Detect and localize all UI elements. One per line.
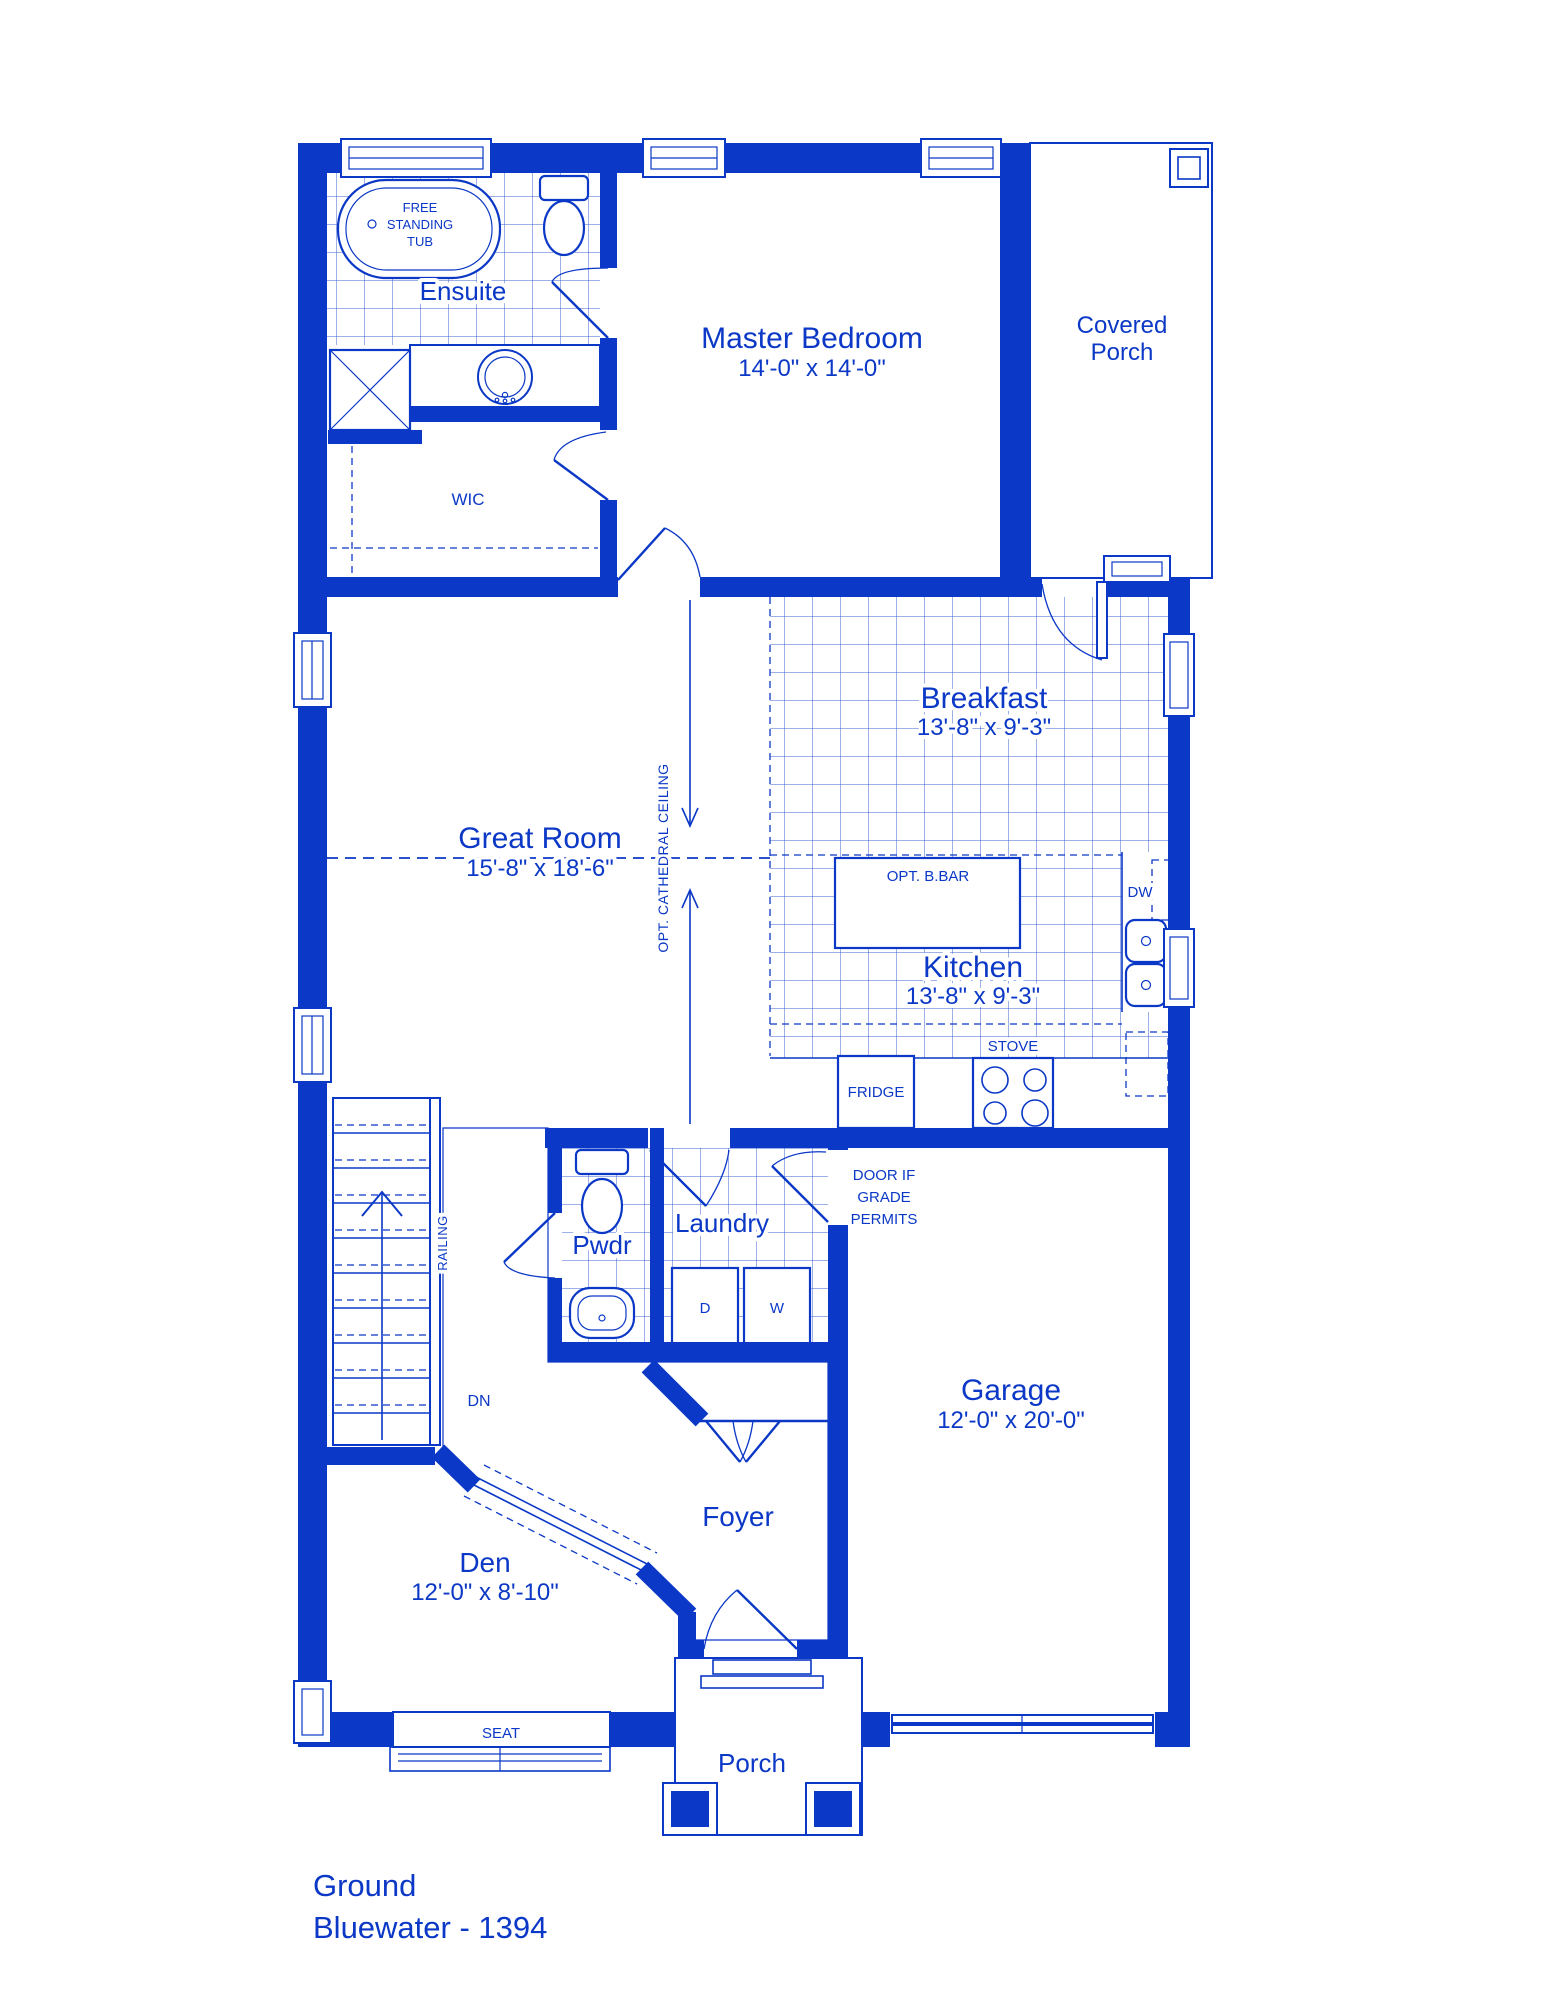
railing-label: RAILING <box>435 1215 450 1271</box>
stove-label: STOVE <box>988 1038 1039 1055</box>
great-room-label: Great Room <box>458 822 621 855</box>
breakfast-dims: 13'-8" x 9'-3" <box>917 714 1051 741</box>
garage-label: Garage <box>961 1374 1061 1407</box>
door-wic <box>554 432 608 500</box>
window-icon <box>294 1681 331 1743</box>
svg-text:PERMITS: PERMITS <box>851 1211 918 1228</box>
garage-door <box>892 1715 1153 1733</box>
kitchen-dims: 13'-8" x 9'-3" <box>906 983 1040 1010</box>
tub-label: FREE <box>403 200 438 215</box>
den-label: Den <box>459 1547 510 1578</box>
opt-bbar-label: OPT. B.BAR <box>887 868 970 885</box>
kitchen-label: Kitchen <box>923 951 1023 984</box>
floor-title: Ground <box>313 1868 416 1903</box>
floor-plan-drawing: FREE STANDING TUB Ensuite WIC Master Bed… <box>0 0 1546 2000</box>
covered-porch-label: Covered <box>1077 312 1168 339</box>
svg-text:Porch: Porch <box>1091 339 1154 366</box>
wic-label: WIC <box>451 490 484 509</box>
dryer-label: D <box>700 1300 711 1317</box>
grade-door-note: DOOR IF <box>853 1167 916 1184</box>
stove <box>973 1058 1053 1128</box>
master-bedroom-label: Master Bedroom <box>701 322 923 355</box>
breakfast-label: Breakfast <box>921 682 1048 715</box>
front-porch <box>663 1658 862 1835</box>
staircase <box>333 1098 440 1445</box>
window-icon <box>643 139 725 177</box>
svg-text:GRADE: GRADE <box>857 1189 910 1206</box>
window-icon <box>294 633 331 707</box>
window-icon <box>921 139 1001 177</box>
floor-plan-page: FREE STANDING TUB Ensuite WIC Master Bed… <box>0 0 1546 2000</box>
powder-label: Pwdr <box>572 1230 632 1260</box>
dn-label: DN <box>467 1393 490 1410</box>
cathedral-ceiling-label: OPT. CATHEDRAL CEILING <box>655 763 671 952</box>
svg-text:TUB: TUB <box>407 234 433 249</box>
door-powder <box>504 1213 555 1278</box>
cathedral-ceiling-annotation <box>682 600 698 1124</box>
window-icon <box>1164 634 1194 716</box>
den-dims: 12'-0" x 8'-10" <box>411 1579 559 1606</box>
porch-post-icon <box>1170 149 1208 187</box>
garage-dims: 12'-0" x 20'-0" <box>937 1407 1085 1434</box>
ensuite-toilet <box>540 176 588 255</box>
master-bedroom-dims: 14'-0" x 14'-0" <box>738 355 886 382</box>
shower <box>330 350 410 430</box>
foyer-label: Foyer <box>702 1501 774 1532</box>
window-icon <box>1164 929 1194 1007</box>
window-icon <box>294 1008 331 1082</box>
window-icon <box>1104 556 1170 582</box>
ensuite-label: Ensuite <box>420 276 507 306</box>
porch-label: Porch <box>718 1748 786 1778</box>
dw-label: DW <box>1128 884 1154 901</box>
seat-label: SEAT <box>482 1725 520 1742</box>
model-title: Bluewater - 1394 <box>313 1910 547 1945</box>
door-master <box>618 528 700 580</box>
svg-text:STANDING: STANDING <box>387 217 453 232</box>
ensuite-vanity-sink <box>410 345 600 407</box>
laundry-label: Laundry <box>675 1208 769 1238</box>
fridge-label: FRIDGE <box>848 1084 905 1101</box>
washer-label: W <box>770 1300 785 1317</box>
powder-sink <box>570 1288 634 1338</box>
great-room-dims: 15'-8" x 18'-6" <box>466 855 614 882</box>
door-foyer-closet-double <box>700 1421 828 1462</box>
window-icon <box>341 139 491 177</box>
